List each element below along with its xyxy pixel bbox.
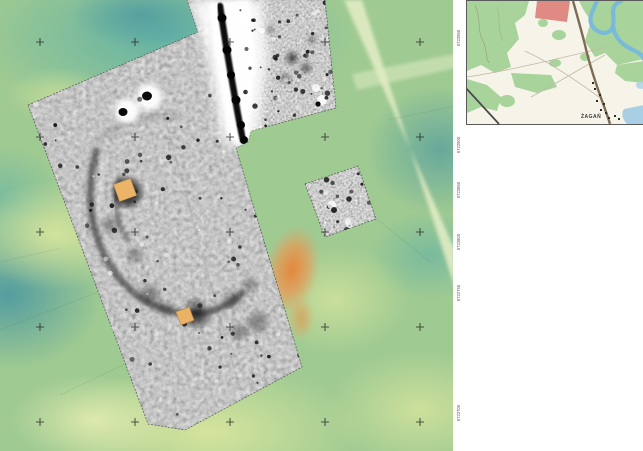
northing-label: 5722950 [456,29,461,46]
northing-label: 5722750 [456,284,461,301]
map-plate: Żagań, woj. lubuskie, stan. 5 (AZP 68-12… [0,0,643,451]
main-map[interactable] [0,0,455,451]
northing-labels: 5722950 5722900 5722850 5722800 5722750 … [451,0,465,451]
northing-label: 5722900 [456,136,461,153]
inset-town-label: ŻAGAŃ [581,112,601,120]
northing-label: 5722850 [456,181,461,198]
northing-label: 5722700 [456,404,461,421]
feature-marker-square-1 [113,178,141,206]
overview-inset-map[interactable]: ŻAGAŃ [466,0,643,125]
northing-label: 5722800 [456,233,461,250]
